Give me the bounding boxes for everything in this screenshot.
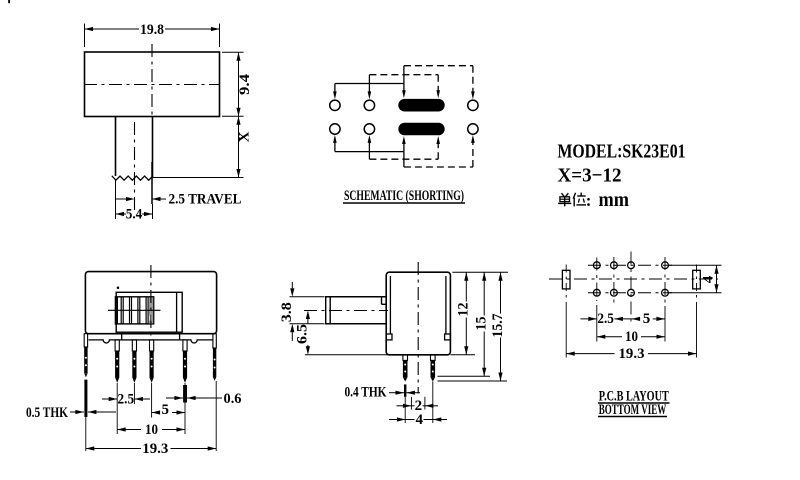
svg-text:4: 4 [701, 275, 717, 283]
svg-text:2.5: 2.5 [118, 391, 135, 407]
svg-text:4: 4 [415, 412, 423, 428]
svg-text:9.4: 9.4 [237, 73, 253, 95]
svg-text:SCHEMATIC (SHORTING): SCHEMATIC (SHORTING) [344, 188, 464, 204]
svg-text:15.7: 15.7 [490, 313, 506, 337]
svg-text:19.3: 19.3 [619, 346, 645, 362]
svg-text:0.6: 0.6 [224, 391, 242, 407]
svg-text:X: X [237, 131, 253, 142]
svg-text:X=3−12: X=3−12 [558, 165, 622, 187]
svg-text:15: 15 [473, 317, 489, 331]
svg-text:2.5: 2.5 [597, 311, 614, 327]
svg-text:0.5 THK: 0.5 THK [26, 405, 68, 421]
svg-text:0.4 THK: 0.4 THK [345, 385, 387, 401]
svg-text:6.5: 6.5 [295, 324, 311, 344]
svg-text:10: 10 [145, 422, 158, 438]
svg-text:2.5 TRAVEL: 2.5 TRAVEL [169, 192, 242, 208]
svg-text:19.8: 19.8 [140, 22, 164, 38]
svg-text:10: 10 [625, 329, 638, 345]
svg-text:5: 5 [162, 402, 170, 418]
svg-text:5: 5 [643, 311, 651, 327]
svg-text:12: 12 [455, 303, 471, 317]
svg-text:19.3: 19.3 [142, 441, 168, 457]
svg-text:MODEL:SK23E01: MODEL:SK23E01 [558, 140, 686, 162]
svg-text:mm: mm [599, 189, 630, 211]
svg-text:5.4: 5.4 [126, 206, 143, 222]
svg-text:3.8: 3.8 [279, 302, 295, 322]
svg-text:BOTTOM VIEW: BOTTOM VIEW [599, 402, 667, 418]
